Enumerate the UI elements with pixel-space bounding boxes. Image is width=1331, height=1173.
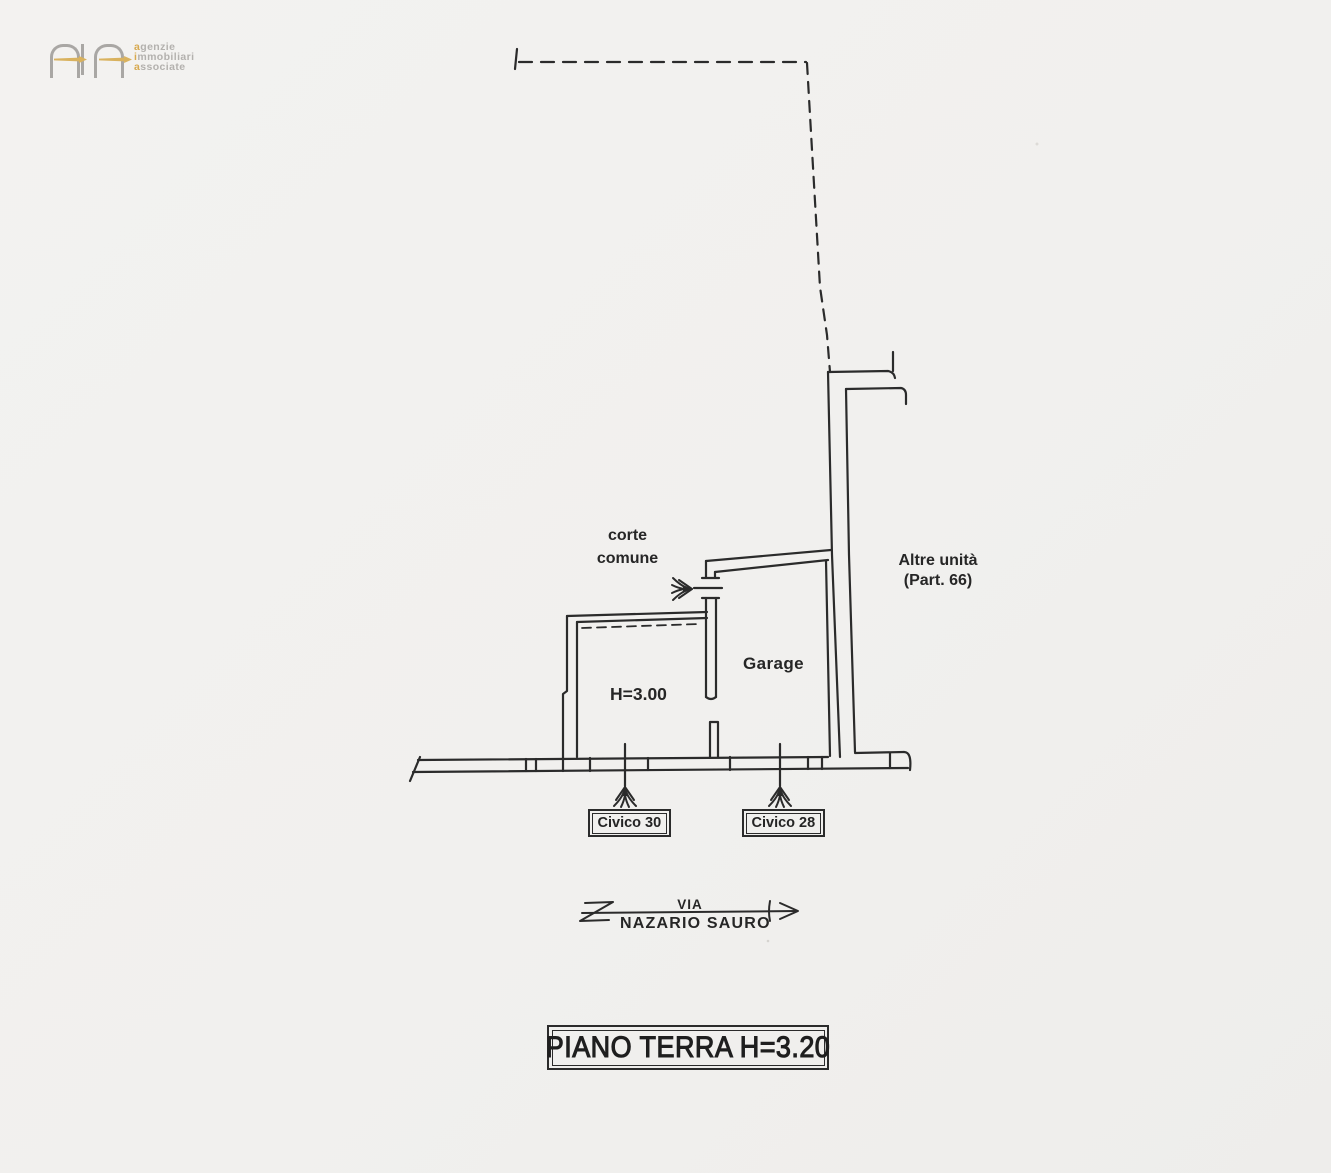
court-label-line2: comune xyxy=(570,548,685,571)
plan-title-inner-frame: PIANO TERRA H=3.20 xyxy=(552,1030,825,1066)
civico-28-box: Civico 28 xyxy=(742,809,825,837)
entrance-arrow-right-icon xyxy=(672,578,722,600)
partition-wall xyxy=(706,598,718,757)
street-wall xyxy=(410,752,910,781)
floorplan-drawing xyxy=(0,0,1331,1173)
other-unit-line2: (Part. 66) xyxy=(877,571,999,591)
civico-30-label: Civico 30 xyxy=(592,813,668,834)
road-break-icon xyxy=(580,902,613,921)
room-height-label: H=3.00 xyxy=(610,684,667,705)
garage-walls xyxy=(702,550,831,756)
other-unit-label: Altre unità (Part. 66) xyxy=(877,551,999,590)
civico-28-label: Civico 28 xyxy=(746,813,822,834)
entrance-arrow-up-icon xyxy=(614,744,636,807)
party-wall xyxy=(828,372,855,757)
street-name-via: VIA xyxy=(630,897,750,912)
court-label-line1: corte xyxy=(570,525,685,548)
entrance-arrow-up-icon xyxy=(769,744,791,807)
other-unit-line1: Altre unità xyxy=(877,551,999,571)
plan-title: PIANO TERRA H=3.20 xyxy=(546,1031,830,1065)
boundary-dashed-line xyxy=(515,49,830,372)
garage-label: Garage xyxy=(743,654,804,674)
civico-30-box: Civico 30 xyxy=(588,809,671,837)
plan-title-box: PIANO TERRA H=3.20 xyxy=(547,1025,829,1070)
upper-wall-stub xyxy=(828,352,906,404)
street-name-nazario-sauro: NAZARIO SAURO xyxy=(620,915,762,933)
court-label: corte comune xyxy=(570,525,685,570)
scanned-floorplan-page: agenzie immobiliari associate xyxy=(0,0,1331,1173)
